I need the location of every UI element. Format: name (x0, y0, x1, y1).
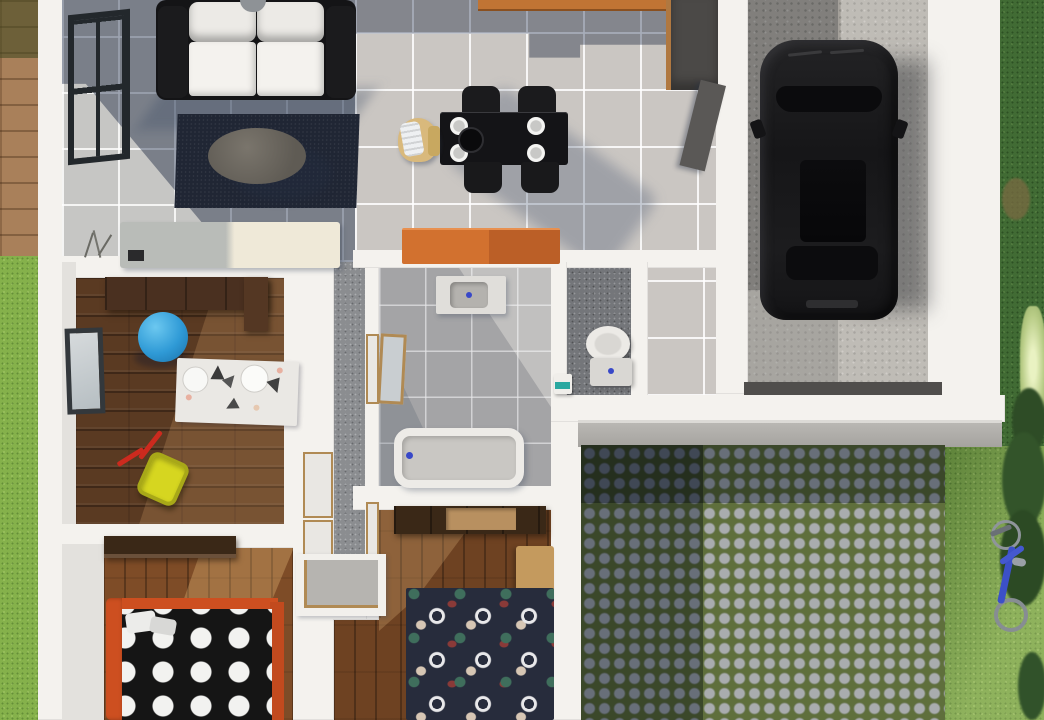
concrete-step (578, 420, 1002, 447)
high-chair (396, 116, 442, 164)
hallway-floor (333, 262, 367, 598)
bed1-foot-rail (270, 602, 284, 720)
bedroom2-floor-extension (333, 618, 381, 720)
coffee-table (208, 128, 306, 184)
car-sunroof (800, 160, 866, 242)
dining-chair-top-left (462, 86, 500, 115)
kitchen-floor-extension (646, 262, 716, 396)
shrub-4 (1018, 652, 1044, 720)
sofa-armrest-right (326, 6, 356, 98)
kids-window (65, 327, 106, 414)
sofa-seat-cushion-right (257, 42, 324, 96)
rug-cheek-dot-3 (253, 405, 259, 411)
hallway-door-left-1 (303, 452, 333, 518)
bedroom2-wardrobe-inset (446, 508, 516, 530)
car-rear-window (786, 246, 878, 280)
bed2-duvet (406, 588, 554, 720)
front-facade-band (551, 395, 1005, 422)
toilet-flush-button (608, 368, 614, 374)
living-window (68, 9, 130, 166)
rug-animal-face-1 (182, 366, 209, 393)
kitchen-counter-strip (478, 0, 668, 11)
dry-grass-patch (1002, 178, 1030, 220)
plate-bottom-right (527, 144, 545, 162)
kids-rug (175, 358, 299, 426)
rug-triangle-4 (223, 398, 239, 414)
hall-closet-interior (304, 560, 378, 608)
kids-wardrobe-side (244, 277, 268, 331)
garage-door-threshold (744, 382, 942, 395)
bedroom1-wardrobe (104, 536, 236, 558)
wood-deck (0, 0, 40, 262)
bicycle-seat (1011, 557, 1026, 567)
vanity-faucet (466, 292, 472, 298)
bathroom-mirror (377, 333, 407, 404)
wc-unit-teal-front (555, 382, 570, 389)
sofa-armrest-left (158, 6, 188, 98)
dining-chair-bottom-left (464, 162, 502, 193)
plate-top-right (527, 117, 545, 135)
high-chair-tray (428, 126, 440, 156)
bathtub-faucet (406, 452, 413, 459)
car-windshield (776, 86, 882, 112)
rug-triangle-3 (266, 378, 284, 396)
rug-cheek-dot-2 (277, 367, 283, 373)
sofa-back-cushion-right (257, 2, 324, 42)
rug-cheek-dot-1 (186, 394, 192, 400)
sofa (156, 0, 356, 100)
sofa-seat-cushion-left (189, 42, 256, 96)
dining-chair-top-right (518, 86, 556, 115)
hallway-door-right-1 (366, 334, 379, 404)
centre-bowl (458, 127, 484, 153)
kitchen-island (402, 228, 560, 264)
wall-bedroom2-right (551, 422, 583, 720)
floorplan-render (0, 0, 1044, 720)
car-rear-plate (806, 300, 858, 308)
wall-garage-left (716, 0, 748, 394)
toilet-seat (586, 326, 630, 362)
wall-bedroom1-left-face (62, 544, 104, 720)
rug-animal-face-2 (240, 364, 269, 393)
bathtub (394, 428, 524, 488)
cobblestone-patio (581, 445, 945, 720)
kitchen-tall-cabinet (666, 0, 718, 90)
bicycle (984, 514, 1042, 642)
blue-ball (138, 312, 188, 362)
sideboard (120, 222, 340, 268)
dining-chair-bottom-right (521, 162, 559, 193)
sideboard-decor-box (128, 250, 144, 261)
lawn-left (0, 256, 40, 720)
